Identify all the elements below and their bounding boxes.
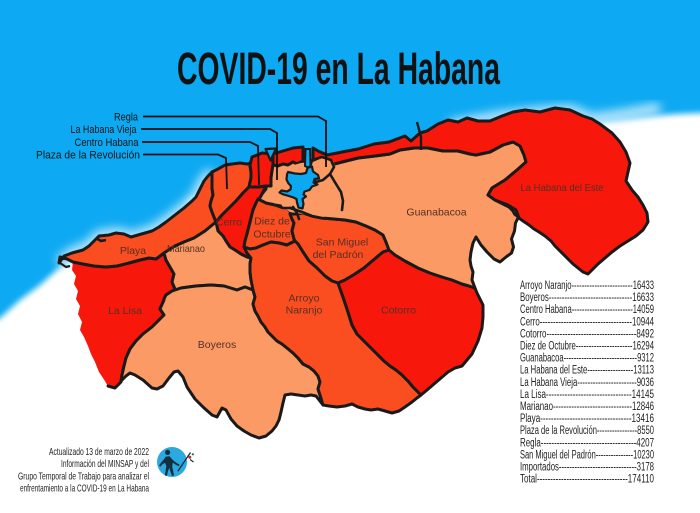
svg-text:Plaza de la Revolución--------: Plaza de la Revolución----------------85… (520, 425, 654, 437)
svg-text:Diez de Octubre---------------: Diez de Octubre----------------------162… (520, 341, 654, 353)
svg-text:San Miguel del Padrón---------: San Miguel del Padrón---------------1023… (520, 449, 654, 461)
svg-text:Cerro: Cerro (216, 217, 242, 229)
svg-text:Información del MINSAP y del: Información del MINSAP y del (61, 458, 149, 470)
svg-text:Arroyo Naranjo----------------: Arroyo Naranjo------------------------16… (520, 280, 654, 292)
svg-text:La Habana del Este------------: La Habana del Este------------------1311… (520, 365, 654, 377)
svg-text:La Habana del Este: La Habana del Este (521, 182, 604, 194)
svg-text:Regla-------------------------: Regla-----------------------------------… (520, 437, 654, 449)
svg-text:La Habana Vieja---------------: La Habana Vieja-----------------------90… (520, 377, 654, 389)
svg-text:Plaza de la Revolución: Plaza de la Revolución (36, 150, 140, 162)
svg-text:Marianao----------------------: Marianao------------------------------12… (520, 401, 654, 413)
svg-text:Naranjo: Naranjo (286, 305, 323, 317)
svg-text:del Padrón: del Padrón (313, 249, 364, 261)
svg-text:Marianao: Marianao (167, 243, 205, 255)
svg-text:Octubre: Octubre (253, 229, 291, 241)
svg-text:Importados--------------------: Importados------------------------------… (520, 462, 654, 474)
svg-text:La Lisa-----------------------: La Lisa--------------------------------1… (520, 389, 654, 401)
svg-text:Actualizado 13 de marzo de 202: Actualizado 13 de marzo de 2022 (49, 446, 149, 458)
svg-text:Arroyo: Arroyo (289, 293, 320, 305)
svg-text:La Lisa: La Lisa (108, 305, 142, 317)
svg-text:Total-------------------------: Total----------------------------------1… (520, 474, 654, 486)
svg-text:Regla: Regla (114, 112, 139, 124)
svg-text:La Habana Vieja: La Habana Vieja (71, 124, 138, 136)
svg-text:Playa: Playa (120, 245, 146, 257)
svg-text:Boyeros-----------------------: Boyeros--------------------------------1… (520, 292, 654, 304)
svg-text:enfrentamiento a la COVID-19 e: enfrentamiento a la COVID-19 en La Haban… (20, 483, 149, 495)
svg-text:Grupo Temporal de Trabajo para: Grupo Temporal de Trabajo para analizar … (18, 470, 149, 482)
svg-text:San Miguel: San Miguel (316, 237, 369, 249)
svg-text:Guanabacoa: Guanabacoa (406, 207, 466, 219)
svg-text:Diez de: Diez de (254, 216, 290, 228)
svg-text:Cerro-------------------------: Cerro-----------------------------------… (520, 316, 654, 328)
svg-text:Boyeros: Boyeros (198, 339, 237, 351)
svg-text:Guanabacoa--------------------: Guanabacoa-----------------------------9… (520, 353, 654, 365)
svg-text:Centro Habana-----------------: Centro Habana------------------------140… (520, 304, 654, 316)
svg-text:Cotorro: Cotorro (381, 305, 416, 317)
svg-text:COVID-19 en La Habana: COVID-19 en La Habana (177, 43, 501, 94)
svg-text:Centro Habana: Centro Habana (75, 137, 140, 149)
svg-text:Playa-------------------------: Playa----------------------------------1… (520, 413, 654, 425)
svg-text:Cotorro-----------------------: Cotorro---------------------------------… (520, 328, 654, 340)
